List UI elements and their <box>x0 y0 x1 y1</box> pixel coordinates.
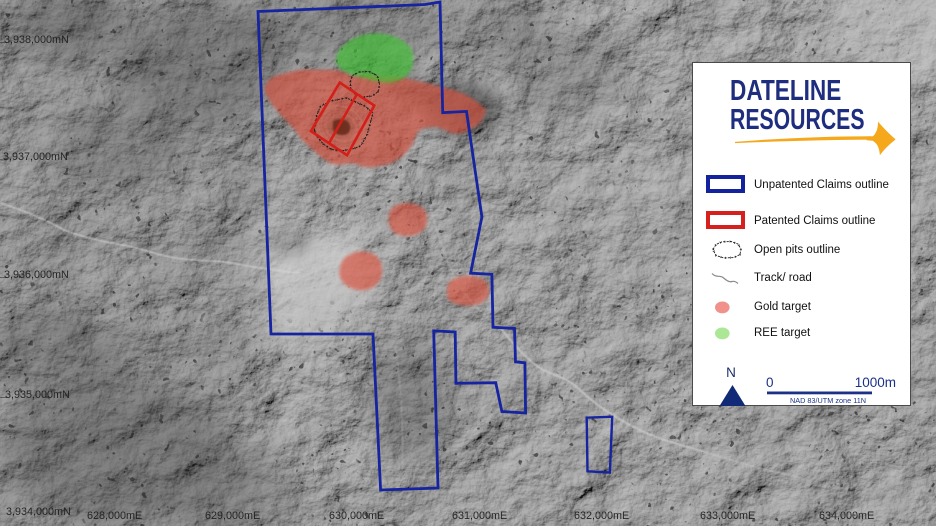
svg-text:N: N <box>726 365 736 380</box>
svg-text:NAD 83/UTM zone 11N: NAD 83/UTM zone 11N <box>790 396 866 405</box>
svg-text:1000m: 1000m <box>855 375 896 390</box>
svg-text:0: 0 <box>766 375 774 390</box>
